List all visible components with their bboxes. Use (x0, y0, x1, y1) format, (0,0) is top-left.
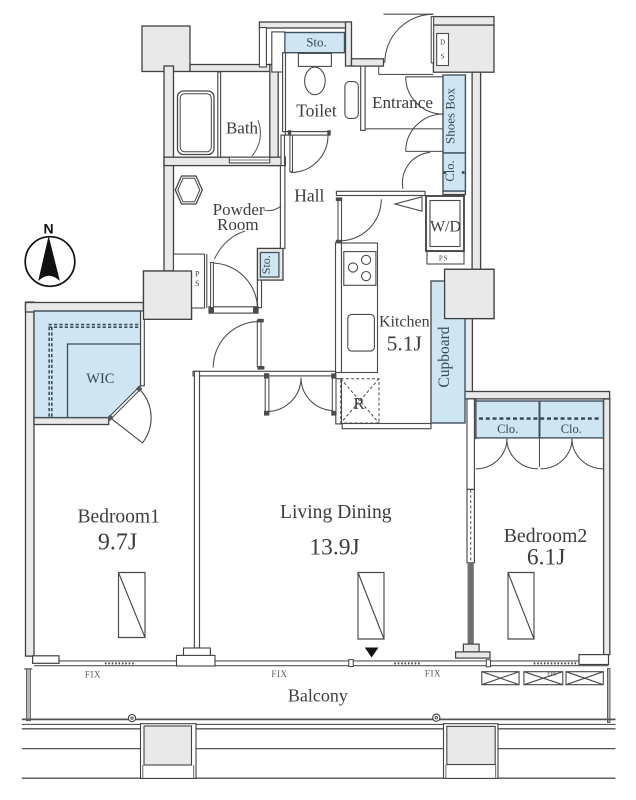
svg-text:Clo.: Clo. (561, 422, 582, 436)
svg-text:Living Dining: Living Dining (280, 502, 392, 523)
svg-text:13.9J: 13.9J (309, 535, 359, 561)
svg-text:S: S (195, 279, 199, 288)
svg-text:FIX: FIX (425, 669, 441, 679)
svg-text:Hall: Hall (294, 185, 324, 205)
svg-text:6.1J: 6.1J (527, 545, 566, 571)
svg-text:D: D (440, 39, 445, 47)
svg-text:Toilet: Toilet (296, 101, 337, 121)
svg-text:R: R (353, 394, 365, 413)
svg-text:EPS: EPS (547, 671, 556, 677)
svg-text:S: S (441, 53, 445, 61)
svg-text:Cupboard: Cupboard (436, 326, 453, 387)
svg-text:N: N (43, 221, 53, 237)
svg-text:Room: Room (217, 215, 259, 234)
svg-text:5.1J: 5.1J (387, 332, 422, 356)
svg-text:W/D: W/D (430, 218, 461, 235)
svg-text:Balcony: Balcony (288, 686, 348, 706)
svg-text:Sto.: Sto. (306, 34, 327, 49)
svg-text:Shoes Box: Shoes Box (443, 88, 458, 144)
svg-text:Kitchen: Kitchen (379, 313, 430, 330)
svg-text:Clo.: Clo. (497, 422, 518, 436)
svg-text:FIX: FIX (85, 670, 101, 680)
svg-text:Entrance: Entrance (372, 93, 433, 112)
svg-text:Clo.: Clo. (443, 160, 457, 181)
svg-text:FIX: FIX (271, 669, 287, 679)
svg-text:9.7J: 9.7J (98, 530, 137, 556)
svg-text:WIC: WIC (86, 371, 114, 387)
svg-text:Sto.: Sto. (259, 255, 273, 274)
svg-text:Bath: Bath (226, 119, 259, 138)
svg-text:PS: PS (439, 254, 448, 262)
svg-text:Bedroom1: Bedroom1 (78, 506, 160, 527)
svg-text:P: P (195, 269, 200, 278)
